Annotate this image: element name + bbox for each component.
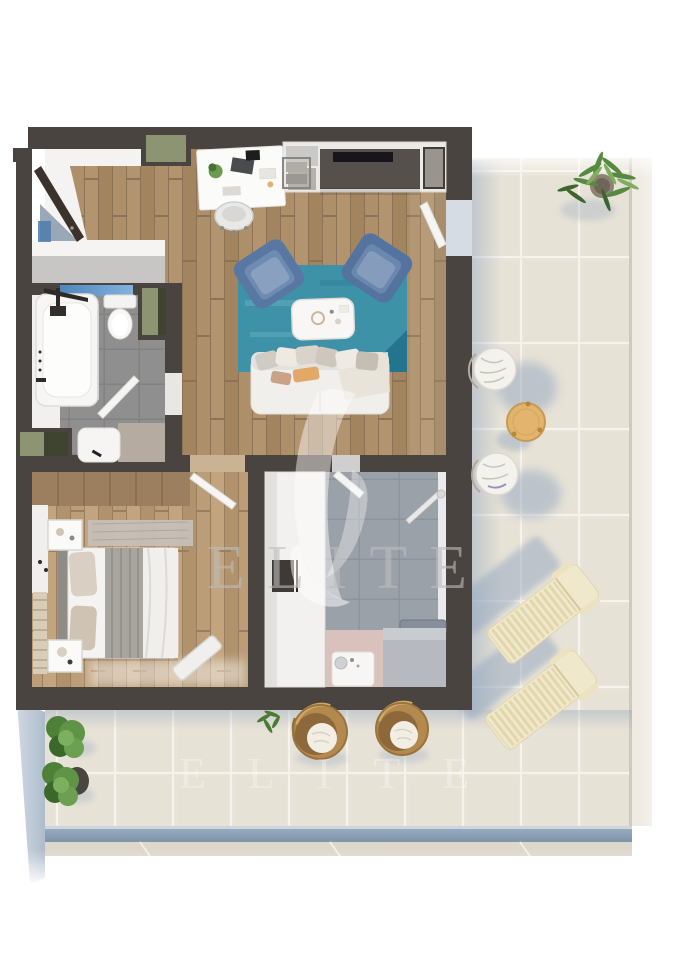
floor-plan-svg: ELITE ELITE xyxy=(0,0,677,958)
coffee-table xyxy=(291,298,354,340)
round-side-table xyxy=(507,402,545,442)
desk xyxy=(196,146,285,210)
wall-step xyxy=(13,148,32,162)
terrace-door-gap xyxy=(446,200,472,256)
terrace-bush-1 xyxy=(46,716,85,758)
wall-panel-top xyxy=(141,130,191,166)
entry-mat xyxy=(38,221,51,242)
desk-chair xyxy=(215,202,253,234)
closet-niche xyxy=(32,240,165,256)
terrace-bottom-fade xyxy=(0,850,677,895)
watermark-text-secondary: ELITE xyxy=(179,749,511,798)
terrace-top-fade xyxy=(472,150,652,178)
rattan-chair-2 xyxy=(376,703,428,755)
bathroom-green-cabinet xyxy=(138,283,170,340)
railing-highlight xyxy=(45,826,632,829)
bathtub xyxy=(36,288,98,406)
bedroom-door-gap xyxy=(190,455,245,472)
wall-left xyxy=(16,148,32,687)
shower-door-gap xyxy=(332,455,360,472)
watermark-text: ELITE xyxy=(207,534,489,602)
bathroom-door-gap xyxy=(165,373,182,415)
pillow xyxy=(68,551,97,597)
nightstand-top xyxy=(48,520,82,550)
faucet xyxy=(335,657,347,669)
bathroom-vanity xyxy=(78,423,165,462)
wall-mid-right xyxy=(360,455,472,472)
closet-niche-shelf xyxy=(32,256,165,286)
nightstand-bottom xyxy=(48,640,82,672)
laundry-niche xyxy=(16,428,72,458)
floor-plan-image: ELITE ELITE xyxy=(0,0,677,958)
terrace-right-fade xyxy=(640,140,677,880)
bedroom-wardrobe xyxy=(32,505,48,593)
tv-screen xyxy=(333,152,393,162)
bedroom-closet-row xyxy=(32,472,190,506)
radiator xyxy=(33,592,47,674)
